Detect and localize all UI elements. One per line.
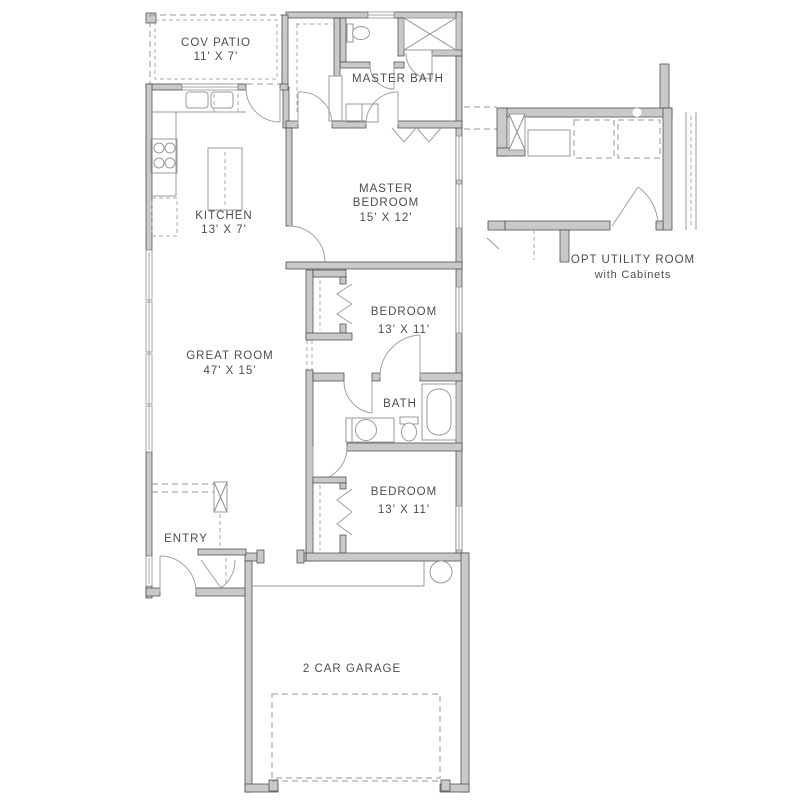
great-room-dims: 47' X 15': [203, 365, 256, 377]
door-post: [297, 550, 304, 563]
toilet-bowl: [353, 27, 370, 40]
front-door-arc: [160, 556, 196, 592]
opt-utility-sub: with Cabinets: [594, 269, 671, 281]
bedroom1-label: BEDROOM: [371, 306, 437, 318]
master-bedroom-line1: MASTER: [359, 183, 413, 195]
garage-label: 2 CAR GARAGE: [303, 663, 401, 675]
vanity-sink: [356, 420, 377, 441]
entry: ENTRY: [146, 482, 246, 596]
master-closet-door-arc: [298, 92, 332, 124]
burner: [154, 143, 164, 153]
bedroom2-label: BEDROOM: [371, 486, 437, 498]
bath-door-arc: [344, 381, 372, 413]
ceiling-light: [633, 108, 642, 117]
bifold-door: [337, 512, 352, 535]
bedroom2-dims: 13' X 11': [378, 504, 430, 516]
back-door-arc: [246, 88, 280, 122]
casement-mark: [417, 128, 441, 142]
burner: [165, 143, 175, 153]
patio-label: COV PATIO: [181, 37, 251, 49]
entry-label: ENTRY: [164, 533, 208, 545]
upper-cabinet-dashed: [618, 120, 660, 158]
great-room-label: GREAT ROOM: [186, 350, 274, 362]
garage-apron-dashed: [272, 694, 440, 778]
opt-utility-detail: OPT UTILITY ROOM with Cabinets: [464, 64, 696, 281]
kitchen-label: KITCHEN: [195, 210, 252, 222]
sink-basin: [186, 92, 208, 108]
toilet-bowl: [402, 423, 417, 441]
bedroom1-door-arc: [380, 335, 420, 377]
kitchen-dims: 13' X 7': [201, 224, 247, 236]
floor-plan-svg: COV PATIO 11' X 7': [0, 0, 800, 800]
utility-counter: [528, 130, 570, 156]
bifold-door: [337, 304, 352, 324]
master-bedroom-dims: 15' X 12': [359, 212, 412, 224]
master-bath-label: MASTER BATH: [352, 73, 444, 85]
closet-door-arc: [221, 560, 235, 588]
bath-label: BATH: [383, 398, 417, 410]
garage: 2 CAR GARAGE: [245, 553, 469, 792]
master-bedroom: MASTER BEDROOM 15' X 12': [286, 128, 462, 269]
master-bath-suite: MASTER BATH: [286, 18, 462, 142]
floor-plan-page: COV PATIO 11' X 7': [0, 0, 800, 800]
casement-mark: [392, 128, 416, 142]
master-bedroom-door-arc: [289, 226, 325, 262]
patio-inner-dashed: [155, 20, 277, 79]
door-post: [257, 550, 264, 563]
covered-patio: COV PATIO 11' X 7': [146, 13, 282, 84]
utility-door-leaf: [612, 187, 638, 226]
bifold-door: [337, 489, 352, 512]
bedroom2-door-arc: [313, 447, 347, 481]
utility-door-arc: [638, 187, 658, 224]
island: [208, 148, 242, 210]
garage-door-pier: [269, 780, 278, 791]
bedroom1-dims: 13' X 11': [378, 324, 430, 336]
garage-door-pier: [441, 780, 450, 791]
burner: [165, 158, 175, 168]
great-room: GREAT ROOM 47' X 15': [186, 350, 274, 377]
bifold-door: [337, 284, 352, 304]
patio-dims: 11' X 7': [194, 51, 239, 63]
master-bath-door-arc: [366, 92, 398, 124]
bath-vanity: [346, 418, 394, 442]
closet-door-leaf: [201, 560, 221, 588]
water-heater: [430, 561, 452, 583]
patio-outline-dashed: [150, 15, 282, 84]
fridge-dashed: [152, 198, 177, 236]
kitchen: KITCHEN 13' X 7': [151, 90, 253, 236]
master-bedroom-line2: BEDROOM: [353, 197, 419, 209]
bedroom-2: BEDROOM 13' X 11': [245, 477, 468, 563]
opt-utility-label: OPT UTILITY ROOM: [571, 254, 695, 266]
burner: [154, 158, 164, 168]
bath: BATH: [313, 381, 462, 481]
upper-cabinet-dashed: [574, 120, 614, 158]
